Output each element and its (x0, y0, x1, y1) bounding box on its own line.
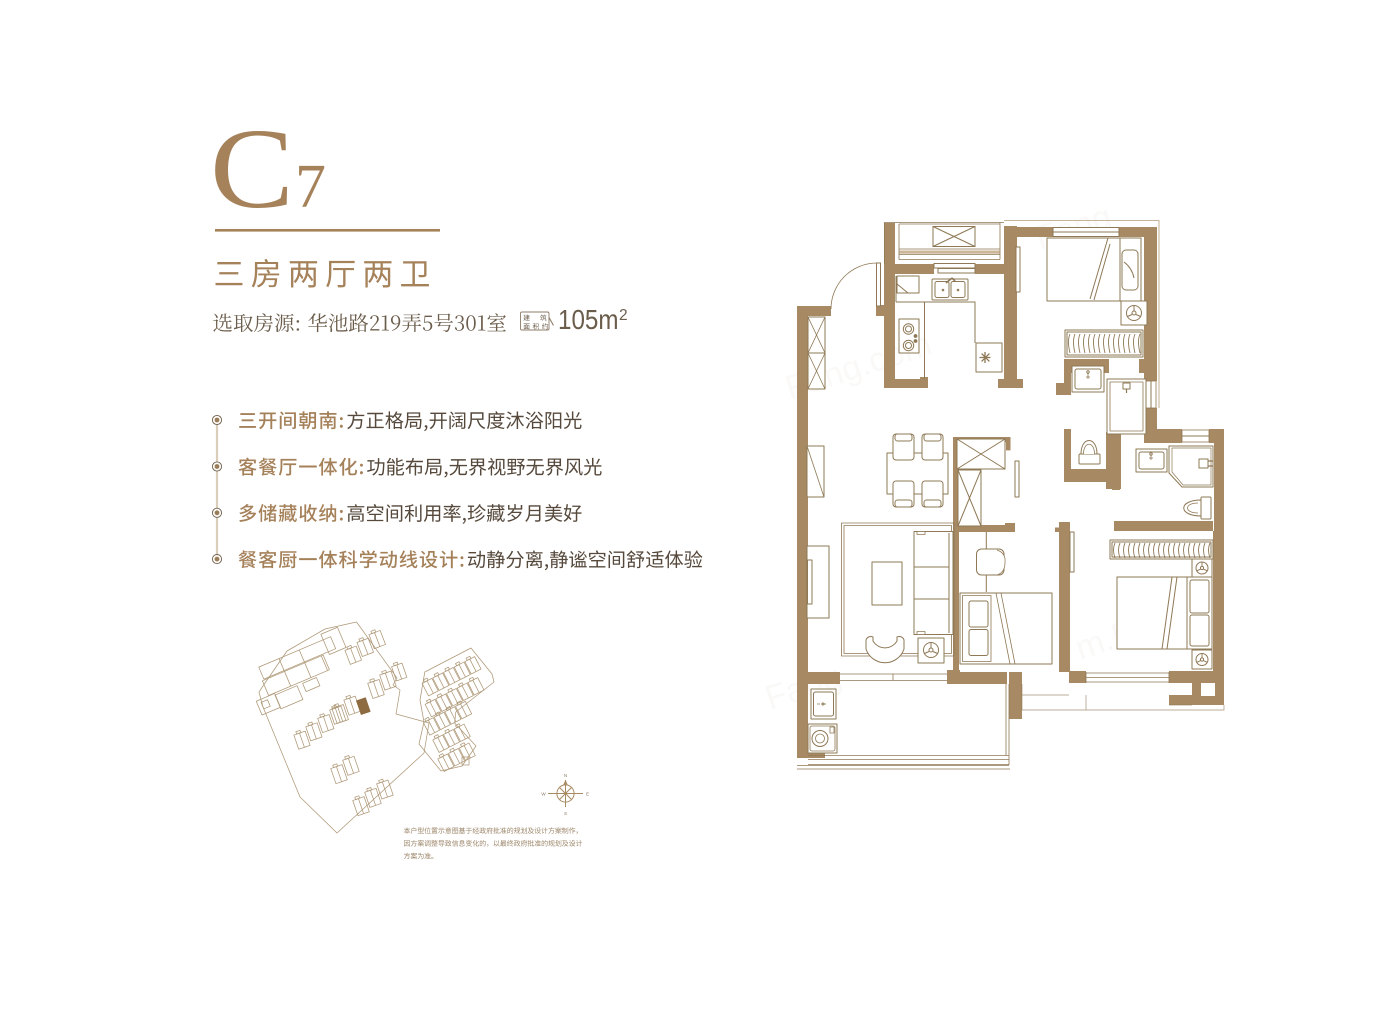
svg-text:C: C (210, 105, 294, 232)
svg-text:105m: 105m (558, 304, 619, 335)
svg-text:2: 2 (619, 307, 628, 324)
svg-text:N: N (564, 773, 567, 778)
svg-text:E: E (586, 792, 589, 797)
svg-text:S: S (564, 811, 567, 816)
svg-text:W: W (541, 792, 546, 797)
svg-text:7: 7 (295, 153, 326, 221)
